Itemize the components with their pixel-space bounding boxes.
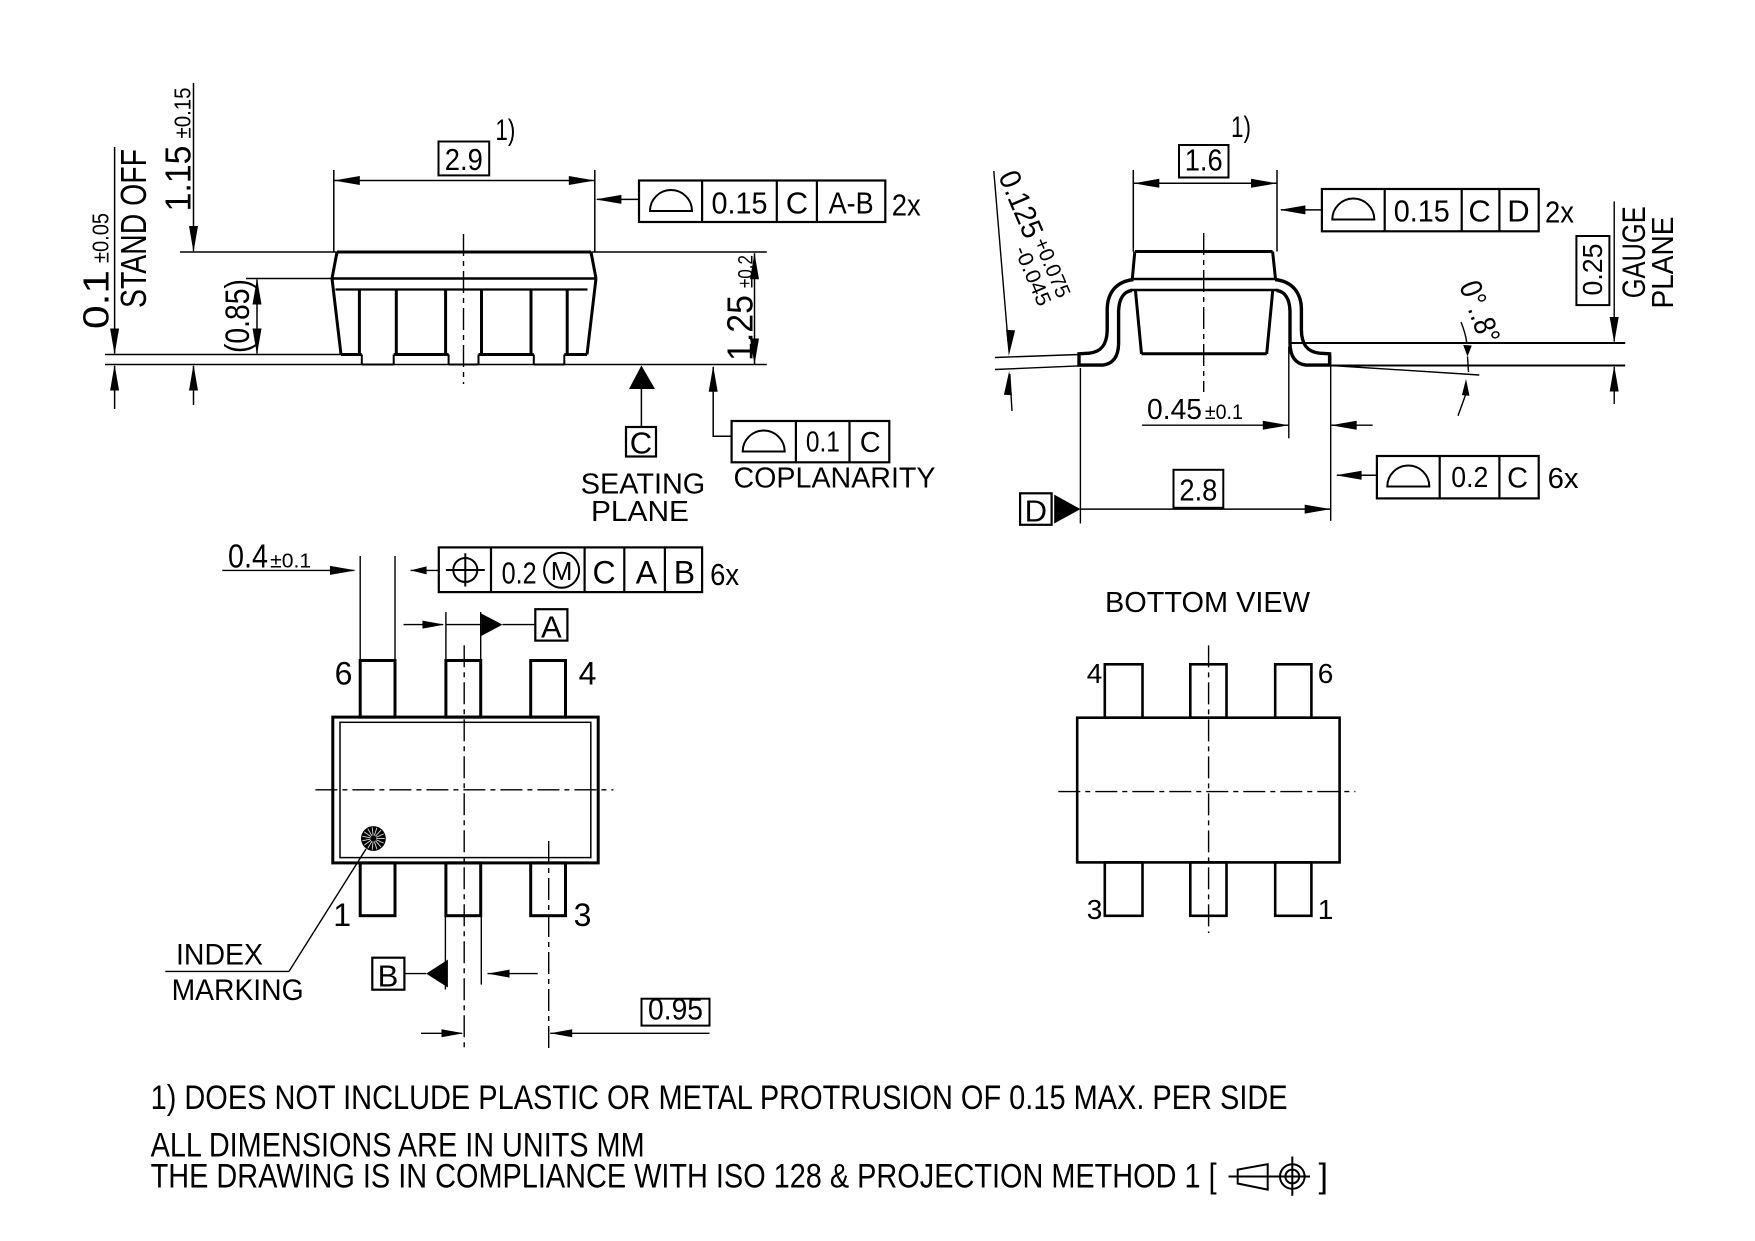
svg-text:±0.1: ±0.1 — [1205, 401, 1243, 424]
svg-text:±0.15: ±0.15 — [170, 88, 196, 139]
svg-text:1: 1 — [333, 897, 351, 933]
svg-text:A: A — [636, 555, 658, 591]
svg-text:2x: 2x — [892, 188, 921, 223]
svg-text:COPLANARITY: COPLANARITY — [734, 463, 936, 495]
svg-text:0.15: 0.15 — [712, 186, 768, 221]
svg-text:2.9: 2.9 — [445, 142, 483, 177]
svg-text:1): 1) — [495, 114, 515, 147]
svg-text:±0.2: ±0.2 — [735, 255, 758, 288]
svg-text:C: C — [630, 425, 652, 460]
svg-text:A-B: A-B — [829, 186, 874, 221]
svg-text:6x: 6x — [1548, 463, 1579, 495]
svg-text:±0.1: ±0.1 — [270, 550, 311, 573]
svg-text:C: C — [592, 555, 615, 591]
svg-text:BOTTOM VIEW: BOTTOM VIEW — [1105, 587, 1311, 619]
svg-text:B: B — [674, 555, 695, 591]
svg-text:0.4: 0.4 — [228, 538, 268, 575]
svg-text:D: D — [1025, 494, 1047, 529]
svg-text:4: 4 — [579, 656, 597, 692]
svg-text:6: 6 — [335, 656, 353, 692]
svg-text:D: D — [1507, 194, 1529, 229]
svg-text:3: 3 — [1087, 894, 1103, 925]
svg-text:STAND OFF: STAND OFF — [113, 149, 154, 308]
svg-text:0.1: 0.1 — [806, 426, 840, 458]
svg-text:1.25: 1.25 — [720, 295, 761, 361]
svg-text:(0.85): (0.85) — [219, 279, 257, 353]
svg-text:6x: 6x — [710, 557, 739, 592]
svg-text:M: M — [551, 556, 573, 586]
svg-text:0.25: 0.25 — [1577, 244, 1608, 296]
svg-text:0.1: 0.1 — [76, 270, 117, 329]
svg-text:0.2: 0.2 — [502, 556, 537, 591]
svg-text:C: C — [1507, 462, 1528, 494]
svg-text:4: 4 — [1087, 658, 1103, 689]
svg-text:1) DOES NOT INCLUDE PLASTIC OR: 1) DOES NOT INCLUDE PLASTIC OR METAL PRO… — [151, 1079, 1288, 1117]
svg-text:1: 1 — [1318, 894, 1334, 925]
svg-text:2x: 2x — [1545, 194, 1574, 229]
svg-text:1.6: 1.6 — [1185, 143, 1223, 178]
svg-text:1.15: 1.15 — [158, 146, 199, 212]
svg-text:2.8: 2.8 — [1179, 473, 1217, 508]
svg-text:C: C — [1468, 194, 1490, 229]
svg-text:1): 1) — [1231, 111, 1251, 144]
svg-text:MARKING: MARKING — [172, 974, 304, 1007]
svg-text:0.45: 0.45 — [1147, 394, 1202, 426]
svg-text:PLANE: PLANE — [591, 496, 689, 528]
svg-text:0.15: 0.15 — [1394, 194, 1450, 229]
svg-text:]: ] — [1319, 1157, 1328, 1195]
svg-text:A: A — [541, 609, 562, 644]
svg-text:0.95: 0.95 — [648, 992, 703, 1027]
svg-text:3: 3 — [574, 897, 592, 933]
svg-text:THE DRAWING IS IN COMPLIANCE W: THE DRAWING IS IN COMPLIANCE WITH ISO 12… — [151, 1157, 1217, 1195]
svg-text:C: C — [860, 427, 881, 459]
svg-text:INDEX: INDEX — [176, 938, 263, 971]
svg-text:C: C — [786, 186, 808, 221]
svg-text:PLANE: PLANE — [1645, 217, 1680, 309]
svg-text:0.2: 0.2 — [1451, 462, 1488, 494]
svg-text:±0.05: ±0.05 — [88, 213, 114, 263]
svg-text:6: 6 — [1318, 658, 1334, 689]
svg-text:B: B — [378, 959, 399, 994]
